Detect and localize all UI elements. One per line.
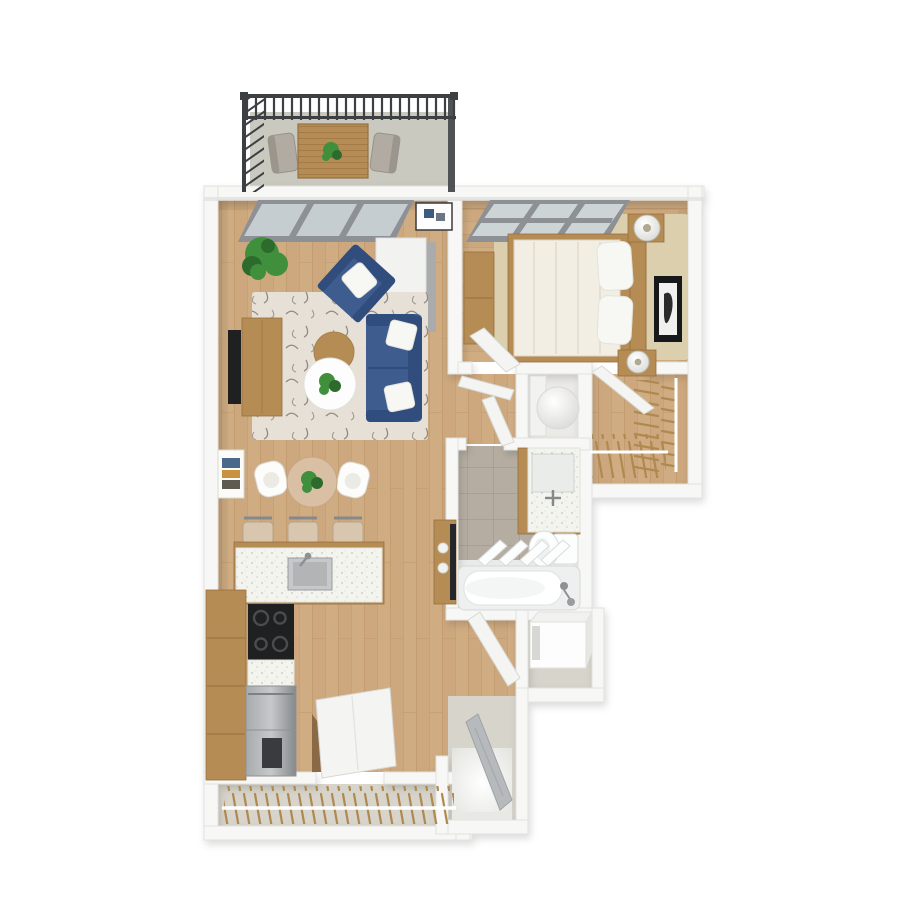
wall-bottom-exterior [204, 826, 472, 840]
dining-art-shape [222, 480, 240, 489]
floor-plan-page: 3D rendered one-bedroom apartment floor … [0, 0, 900, 900]
floor-plan-image: 3D rendered one-bedroom apartment floor … [0, 0, 900, 900]
balcony-railing-right-rail [448, 94, 455, 192]
coat-closet-hangers [224, 786, 454, 824]
bar-stool [288, 518, 318, 544]
oven [246, 686, 296, 730]
bed-pillow-top [596, 241, 633, 291]
dresser [464, 252, 494, 344]
balcony-post-left [240, 92, 248, 100]
wall-bedroom-bottom-mid [516, 362, 592, 374]
dishwasher-panel [262, 738, 282, 768]
kitchen-island [234, 542, 384, 604]
living-wall-art [416, 203, 452, 230]
dining-art-shape [222, 470, 240, 478]
wall-entry-right [516, 688, 528, 834]
side-cabinet-dark-panel [450, 524, 456, 600]
tv-console [228, 318, 282, 416]
vanity-sink-inset [532, 454, 574, 492]
bedroom [464, 200, 688, 376]
sofa-pillow-bottom [384, 381, 416, 412]
wall-right-exterior [688, 186, 702, 498]
tv-screen [228, 330, 241, 404]
balcony-railing-left-rail [242, 94, 246, 192]
side-cabinet [434, 520, 456, 604]
closet-hangers-bottom [592, 434, 666, 478]
stool-seat [288, 522, 318, 544]
cooktop [248, 604, 294, 660]
stool-seat [333, 522, 363, 544]
bar-stool [243, 518, 273, 544]
bathtub-water-shine [465, 577, 545, 599]
pantry-cabinet [206, 590, 246, 780]
sliding-glass-door [238, 200, 414, 242]
tub-faucet [560, 582, 568, 590]
lamp-bottom-finial [635, 359, 642, 366]
nightstand-bottom [618, 350, 656, 376]
wall-utility-closet-left [516, 374, 528, 438]
bedroom-wall-art [654, 276, 682, 342]
balcony-post-right [450, 92, 458, 100]
bedroom-window-mullion-horizontal [481, 218, 613, 223]
stainless-appliances [246, 686, 296, 776]
wall-bedroom-bottom-stub [458, 362, 472, 374]
cabinet-bowl [438, 543, 448, 553]
cabinet-bowl [438, 563, 448, 573]
nightstand-top [628, 214, 664, 242]
wall-walkin-closet-bottom [578, 484, 702, 498]
patio-chair-left [267, 133, 298, 174]
living-wall-art-shape [436, 213, 445, 221]
bathtub [458, 566, 580, 610]
bar-stool [333, 518, 363, 544]
coat-closet-door-open [316, 688, 396, 778]
bar-stools [243, 518, 363, 544]
stool-seat [243, 522, 273, 544]
washer-control-panel [532, 626, 540, 660]
dining-art-shape [222, 458, 240, 468]
headboard [630, 230, 646, 364]
entry-threshold-step [452, 812, 512, 820]
living-wall-art-shape [424, 209, 434, 218]
wall-laundry-bottom [516, 688, 604, 702]
balcony-railing-top-bottom-rail [242, 116, 456, 119]
sliding-door-glass [244, 204, 408, 236]
dining-wall-art [218, 450, 244, 498]
bed-pillow-bottom [597, 295, 633, 345]
blue-sofa [366, 314, 422, 422]
tub-handle [567, 598, 575, 606]
patio-chair-right [369, 132, 400, 173]
washer-top [530, 612, 592, 622]
kitchen-counter-segment [248, 660, 294, 686]
bed [508, 230, 646, 364]
water-heater [537, 387, 579, 429]
pantry-body [206, 590, 246, 780]
island-sink-basin [293, 562, 327, 586]
vanity [518, 448, 580, 534]
balcony-railing-top-rail [242, 94, 456, 98]
cooktop-surface [248, 604, 294, 660]
lamp-top-finial [643, 224, 651, 232]
